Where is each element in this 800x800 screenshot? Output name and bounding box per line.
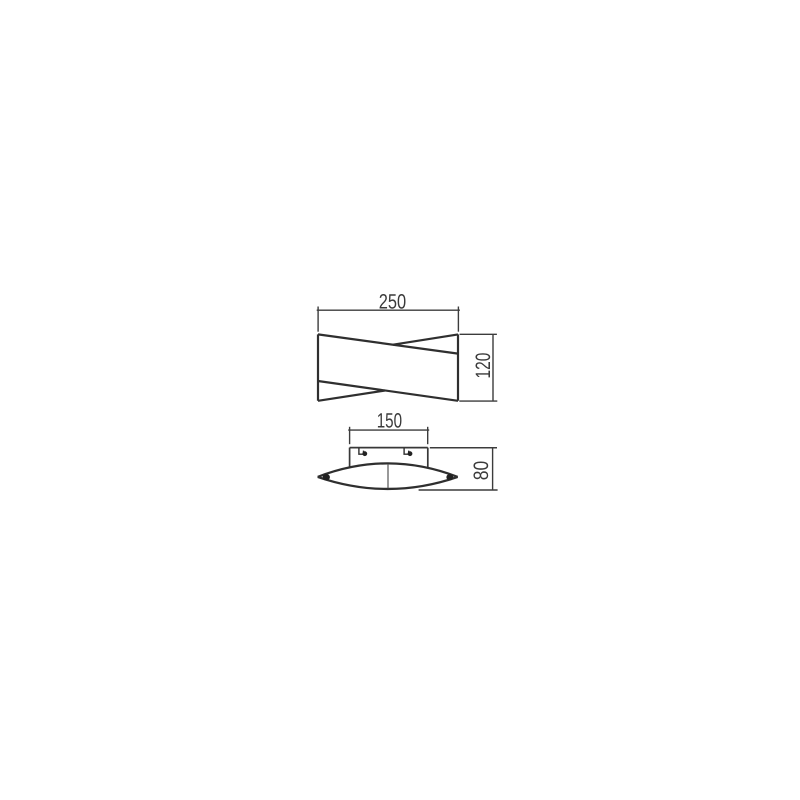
svg-text:80: 80 <box>470 461 493 480</box>
svg-text:120: 120 <box>472 353 495 379</box>
svg-text:250: 250 <box>379 291 406 314</box>
svg-text:150: 150 <box>377 410 402 433</box>
